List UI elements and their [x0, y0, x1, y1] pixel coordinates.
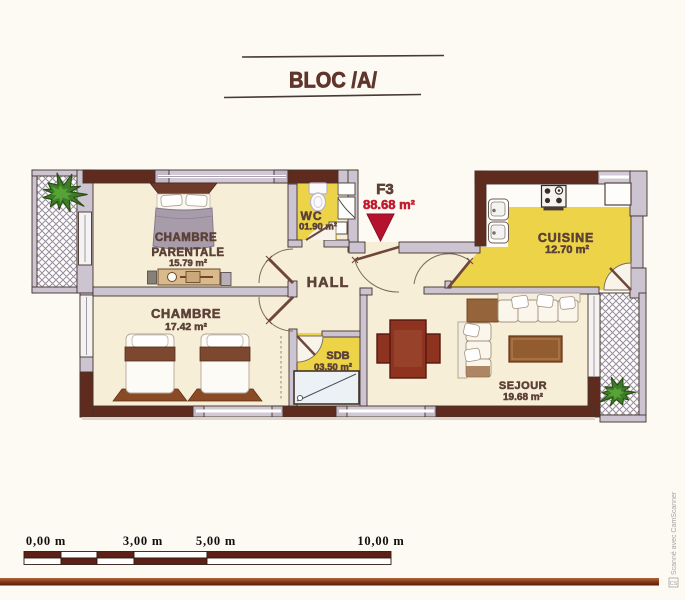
svg-text:0,00 m: 0,00 m — [26, 534, 66, 548]
svg-text:01.90 m²: 01.90 m² — [299, 222, 337, 233]
svg-text:BLOC /A/: BLOC /A/ — [289, 68, 377, 93]
svg-text:12.70 m²: 12.70 m² — [545, 244, 589, 256]
svg-text:10,00 m: 10,00 m — [357, 534, 404, 548]
svg-text:3,00 m: 3,00 m — [123, 534, 163, 548]
svg-text:CS: CS — [670, 581, 678, 587]
svg-text:88.68 m²: 88.68 m² — [363, 197, 416, 212]
svg-text:03.50 m²: 03.50 m² — [314, 362, 352, 373]
svg-text:CHAMBRE: CHAMBRE — [151, 306, 221, 321]
svg-text:SEJOUR: SEJOUR — [499, 380, 547, 392]
svg-text:F3: F3 — [376, 181, 394, 198]
svg-text:SDB: SDB — [326, 350, 349, 362]
svg-text:5,00 m: 5,00 m — [196, 534, 236, 548]
svg-text:HALL: HALL — [307, 275, 350, 291]
svg-text:15.79 m²: 15.79 m² — [169, 258, 207, 269]
svg-text:CUISINE: CUISINE — [538, 231, 594, 245]
svg-text:19.68 m²: 19.68 m² — [503, 392, 544, 403]
svg-text:CHAMBRE: CHAMBRE — [155, 232, 217, 244]
svg-text:17.42 m²: 17.42 m² — [165, 321, 208, 333]
svg-text:Scanné avec CamScanner: Scanné avec CamScanner — [671, 491, 678, 575]
